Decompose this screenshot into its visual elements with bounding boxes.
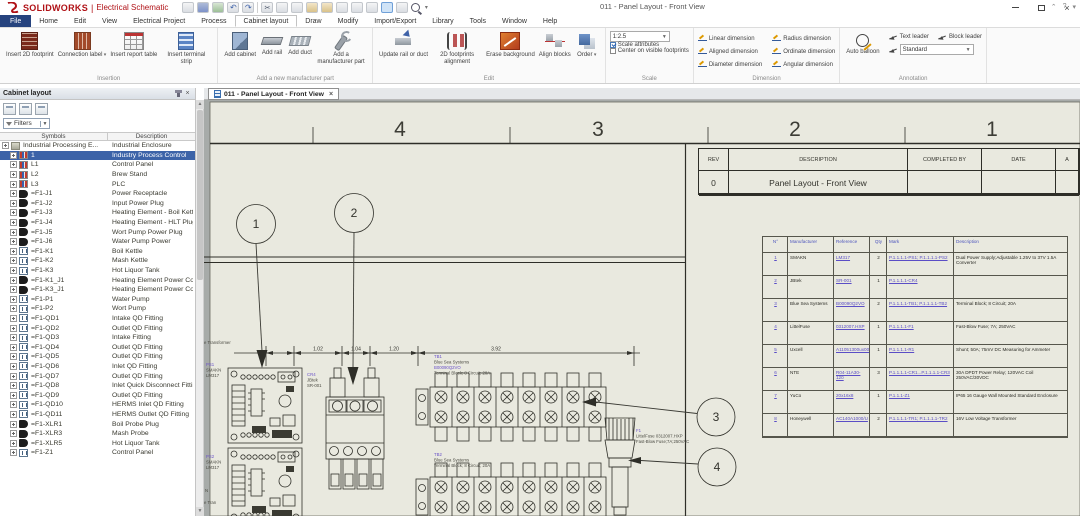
close-icon: × xyxy=(185,90,189,97)
window-title: 011 - Panel Layout - Front View xyxy=(600,2,705,11)
dimension-value: 3.92 xyxy=(491,347,501,353)
expand-icon[interactable] xyxy=(10,229,17,236)
expand-icon[interactable] xyxy=(10,286,17,293)
ribbon-button[interactable]: Order xyxy=(573,30,601,60)
bom-number-link[interactable]: 1 xyxy=(763,253,788,276)
tree-row[interactable]: =F1-J5 Wort Pump Power Plug xyxy=(0,227,195,237)
symbol-label: =F1-QD7 xyxy=(31,373,59,380)
expand-icon[interactable] xyxy=(10,392,17,399)
symbol-icon xyxy=(19,353,28,361)
tree-row[interactable]: =F1-K2 Mash Kettle xyxy=(0,256,195,266)
bom-reference-link[interactable]: AC140A1000/U xyxy=(834,414,870,437)
tree-row[interactable]: =F1-XLR1 Boil Probe Plug xyxy=(0,419,195,429)
symbol-icon xyxy=(19,430,28,438)
panel-header: Cabinet layout × xyxy=(0,88,195,100)
symbol-icon xyxy=(19,401,28,409)
ribbon-group-label: Add a new manufacturer part xyxy=(218,76,372,82)
tree-row[interactable]: =F1-K1_J1 Heating Element Power Conne... xyxy=(0,275,195,285)
tree-row[interactable]: =F1-K3 Hot Liquor Tank xyxy=(0,266,195,276)
description-column-header[interactable]: Description xyxy=(108,133,195,140)
bom-table: N° Manufacturer Reference Qty Mark Descr… xyxy=(762,236,1068,438)
ribbon-button[interactable]: Insert 2D footprint xyxy=(4,30,56,60)
chevron-down-icon: ▼ xyxy=(662,34,667,40)
tree-scrollbar[interactable]: ▲ ▼ xyxy=(196,100,204,516)
expand-icon[interactable] xyxy=(10,296,17,303)
f1-reference-label: LittelFuse 0312007.HXP xyxy=(636,434,683,439)
expand-icon[interactable] xyxy=(10,257,17,264)
dimension-label: Aligned dimension xyxy=(709,49,758,55)
description-label: Control Panel xyxy=(112,161,193,168)
qat-icon[interactable] xyxy=(381,2,393,13)
expand-icon[interactable] xyxy=(10,344,17,351)
description-label: Water Pump Power xyxy=(112,238,193,245)
tb1-description-label: Terminal Block; 8 Circuit; 20A xyxy=(434,371,490,376)
expand-icon[interactable] xyxy=(10,248,17,255)
chevron-up-icon[interactable]: ⌃ xyxy=(1051,3,1057,11)
description-label: Power Receptacle xyxy=(112,190,193,197)
bom-number-link[interactable]: 3 xyxy=(763,299,788,322)
tb2-manufacturer-label: Blue Sea Systems xyxy=(434,458,469,463)
expand-icon[interactable] xyxy=(10,181,17,188)
bom-reference-link[interactable]: A11051300ux0044 xyxy=(834,345,870,368)
bom-row: 3 Blue Sea Systems B00090Q2VO 2 P.1.1.1.… xyxy=(763,299,1067,322)
tree-row[interactable]: =F1-QD7 Outlet QD Fitting xyxy=(0,371,195,381)
brand-separator: | xyxy=(91,3,93,13)
qat-icon[interactable] xyxy=(242,2,254,13)
tree-row[interactable]: L3 PLC xyxy=(0,179,195,189)
menu-tab[interactable]: Edit xyxy=(66,15,94,27)
description-label: Brew Stand xyxy=(112,171,193,178)
text-leader-icon xyxy=(888,33,898,41)
dimension-button[interactable]: Ordinate dimension xyxy=(772,46,835,58)
minimize-icon xyxy=(1012,7,1019,8)
bom-row: 6 NTE R04-11A30-120 3 P.1.1.1.1-CR1...P.… xyxy=(763,368,1067,391)
titlebar: SOLIDWORKS | Electrical Schematic 011 - … xyxy=(0,0,1080,15)
scroll-down-arrow-icon[interactable]: ▼ xyxy=(196,507,204,516)
panel-close-button[interactable]: × xyxy=(183,89,192,98)
menubar-right-icons: ⌃ ? ▾ xyxy=(1051,0,1076,13)
symbol-icon xyxy=(19,382,28,390)
symbol-label: =F1-J5 xyxy=(31,229,52,236)
description-label: HERMS Inlet QD Fitting xyxy=(112,401,193,408)
bom-row: 1 SMAKN LM317 2 P.1.1.1.1-PS1; P.1.1.1.1… xyxy=(763,253,1067,276)
expand-icon[interactable] xyxy=(10,411,17,418)
bom-manufacturer-cell: SMAKN xyxy=(788,253,834,276)
dimension-icon xyxy=(698,48,707,57)
document-tab-label: 011 - Panel Layout - Front View xyxy=(224,91,324,98)
qat-icon[interactable] xyxy=(197,2,209,13)
expand-icon[interactable] xyxy=(10,190,17,197)
scrollbar-thumb[interactable] xyxy=(197,110,203,280)
menu-tab[interactable]: Import/Export xyxy=(366,15,424,27)
bom-reference-link[interactable]: 20x16x8 xyxy=(834,391,870,414)
description-label: Outlet QD Fitting xyxy=(112,325,193,332)
bom-mark-link[interactable]: P.1.1.1.1-R1 xyxy=(887,345,954,368)
bom-qty-cell: 1 xyxy=(870,322,887,345)
filters-button[interactable]: Filters ▼ xyxy=(3,118,50,129)
ribbon-button[interactable]: Add duct xyxy=(286,30,314,58)
bom-mark-link[interactable]: P.1.1.1.1-CR1...P.1.1.1.1-CR3 xyxy=(887,368,954,391)
symbol-label: =F1-XLR3 xyxy=(31,430,62,437)
bom-number-link[interactable]: 7 xyxy=(763,391,788,414)
ps1-manufacturer-label: SMAKN xyxy=(206,368,221,373)
bom-qty-cell: 2 xyxy=(870,414,887,437)
bom-reference-link[interactable]: B00090Q2VO xyxy=(834,299,870,322)
symbol-icon xyxy=(19,219,28,227)
tree-row[interactable]: =F1-QD2 Outlet QD Fitting xyxy=(0,323,195,333)
block-leader-button[interactable]: Block leader xyxy=(937,33,982,41)
menu-tab[interactable]: Home xyxy=(31,15,66,27)
expand-icon[interactable] xyxy=(10,440,17,447)
symbol-label: =F1-J3 xyxy=(31,209,52,216)
description-label: Heating Element Power Conne... xyxy=(112,277,193,284)
dimension-label: Ordinate dimension xyxy=(783,49,835,55)
bom-number-link[interactable]: 8 xyxy=(763,414,788,437)
date-value xyxy=(982,171,1056,196)
bom-reference-link[interactable]: R04-11A30-120 xyxy=(834,368,870,391)
ps2-reference-label: LM317 xyxy=(206,465,220,470)
ribbon-button-label: Connection label xyxy=(58,52,107,59)
bom-mark-link[interactable]: P.1.1.1.1-TR1; P.1.1.1.1-TR2 xyxy=(887,414,954,437)
f1-tag-label: F1 xyxy=(636,428,642,433)
bom-manufacturer-cell: JBtek xyxy=(788,276,834,299)
menu-tab[interactable]: Help xyxy=(535,15,565,27)
symbol-icon xyxy=(19,257,28,265)
table-icon[interactable] xyxy=(19,103,32,115)
tree-row[interactable]: =F1-K3_J1 Heating Element Power Conne... xyxy=(0,285,195,295)
ribbon-button-icon xyxy=(124,32,144,50)
bom-description-cell: Terminal Block; 8 Circuit; 20A xyxy=(954,299,1067,322)
tree-row[interactable]: =F1-P1 Water Pump xyxy=(0,295,195,305)
symbol-icon xyxy=(19,286,28,294)
ribbon-button-label: Update rail or duct xyxy=(379,52,428,59)
tb2-tag-label: TB2 xyxy=(434,452,442,457)
menu-tab[interactable]: Modify xyxy=(330,15,367,27)
qat-icon[interactable] xyxy=(291,2,303,13)
minimize-button[interactable] xyxy=(1002,0,1028,15)
tree-row[interactable]: =F1-XLR5 Hot Liquor Tank xyxy=(0,438,195,448)
qat-icon[interactable] xyxy=(411,3,420,12)
pin-icon xyxy=(177,90,180,97)
tree-row[interactable]: =F1-J4 Heating Element - HLT Plug xyxy=(0,218,195,228)
tree-row[interactable]: =F1-J1 Power Receptacle xyxy=(0,189,195,199)
qat-icon[interactable] xyxy=(227,2,239,13)
expand-icon[interactable] xyxy=(10,305,17,312)
expand-icon[interactable] xyxy=(10,373,17,380)
qat-icon[interactable] xyxy=(257,2,258,13)
tree-row[interactable]: =F1-J2 Input Power Plug xyxy=(0,199,195,209)
ribbon-button[interactable]: Align blocks xyxy=(537,30,573,60)
ribbon-button-label: Insert 2D footprint xyxy=(6,52,54,59)
tree-row[interactable]: =F1-QD3 Intake Fitting xyxy=(0,333,195,343)
symbol-label: =F1-K2 xyxy=(31,257,53,264)
zone-number: 1 xyxy=(986,118,998,141)
description-label: Inlet QD Fitting xyxy=(112,363,193,370)
document-icon[interactable] xyxy=(3,103,16,115)
bom-mark-link[interactable]: P.1.1.1.1-PS1; P.1.1.1.1-PS2 xyxy=(887,253,954,276)
ribbon-button[interactable]: Add a manufacturer part xyxy=(314,30,368,66)
ribbon-button-icon xyxy=(331,32,351,50)
ribbon-button[interactable]: Insert terminal strip xyxy=(159,30,213,66)
qat-icon[interactable] xyxy=(321,2,333,13)
expand-icon[interactable] xyxy=(10,238,17,245)
description-label: Mash Probe xyxy=(112,430,193,437)
bom-number-link[interactable]: 4 xyxy=(763,322,788,345)
qat-icon[interactable] xyxy=(351,2,363,13)
dimension-icon xyxy=(772,61,781,70)
expand-icon[interactable] xyxy=(10,152,17,159)
symbol-label: L3 xyxy=(31,181,39,188)
symbol-icon xyxy=(19,247,28,255)
ribbon-button-label: Add a manufacturer part xyxy=(316,52,366,65)
qat-icon[interactable] xyxy=(423,2,429,13)
bom-number-link[interactable]: 2 xyxy=(763,276,788,299)
menu-tab[interactable]: Electrical Project xyxy=(125,15,193,27)
description-header: DESCRIPTION xyxy=(729,149,908,171)
tree-row[interactable]: =F1-QD5 Outlet QD Fitting xyxy=(0,352,195,362)
ribbon-group-label: Dimension xyxy=(694,76,839,82)
bom-description-cell: IP65 16 Gauge Wall Mounted Standard Encl… xyxy=(954,391,1067,414)
tree-row[interactable]: =F1-QD11 HERMS Outlet QD Fitting xyxy=(0,410,195,420)
qat-icon[interactable] xyxy=(396,2,408,13)
ribbon-button-icon xyxy=(289,36,312,46)
menu-tab[interactable]: Tools xyxy=(462,15,494,27)
tree-row[interactable]: =F1-QD6 Inlet QD Fitting xyxy=(0,362,195,372)
expand-icon[interactable] xyxy=(2,142,9,149)
auto-balloon-button[interactable]: Auto balloon xyxy=(844,30,881,57)
dimension-button[interactable]: Angular dimension xyxy=(772,59,835,71)
ribbon-button-label: Add rail xyxy=(262,50,282,57)
qat-icon[interactable] xyxy=(306,2,318,13)
qat-icon[interactable] xyxy=(182,2,194,13)
symbol-label: 1 xyxy=(31,152,35,159)
tree-row[interactable]: =F1-QD1 Intake QD Fitting xyxy=(0,314,195,324)
quick-access-toolbar xyxy=(182,2,429,13)
tree-row[interactable]: 1 Industry Process Control xyxy=(0,151,195,161)
tree-row[interactable]: =F1-QD8 Inlet Quick Disconnect Fitting xyxy=(0,381,195,391)
symbol-icon xyxy=(19,190,28,198)
bom-mark-link[interactable]: P.1.1.1.1-CR4 xyxy=(887,276,954,299)
bom-number-link[interactable]: 6 xyxy=(763,368,788,391)
menu-tab[interactable]: View xyxy=(94,15,125,27)
panel-toolbar xyxy=(0,100,195,117)
pin-button[interactable] xyxy=(174,89,183,98)
symbol-icon xyxy=(19,276,28,284)
expand-icon[interactable] xyxy=(10,401,17,408)
approved-value xyxy=(1056,171,1079,196)
leader-style-value: Standard xyxy=(903,47,927,53)
scale-select[interactable]: 1:2.5▼ xyxy=(610,31,670,42)
menu-tab[interactable]: Library xyxy=(424,15,461,27)
tree-row[interactable]: =F1-XLR3 Mash Probe xyxy=(0,429,195,439)
expand-icon[interactable] xyxy=(10,430,17,437)
balloon-number: 2 xyxy=(351,206,358,220)
bom-reference-link[interactable]: LM317 xyxy=(834,253,870,276)
bom-manufacturer-cell: Uxcell xyxy=(788,345,834,368)
description-label: Heating Element - Boil Kettle Pl... xyxy=(112,209,193,216)
ribbon-group-label: Insertion xyxy=(0,76,217,82)
ribbon-button-label: Insert terminal strip xyxy=(161,52,211,65)
tree-row[interactable]: =F1-J3 Heating Element - Boil Kettle Pl.… xyxy=(0,208,195,218)
bom-manufacturer-header: Manufacturer xyxy=(788,237,834,253)
description-label: Intake QD Fitting xyxy=(112,315,193,322)
dimension-button[interactable]: Radius dimension xyxy=(772,33,835,45)
symbol-label: =F1-Z1 xyxy=(31,449,53,456)
zone-number: 2 xyxy=(789,118,801,141)
menu-tab[interactable]: Cabinet layout xyxy=(235,15,298,27)
tb1-manufacturer-label: Blue Sea Systems xyxy=(434,360,469,365)
expand-icon[interactable] xyxy=(10,161,17,168)
ribbon-button-icon xyxy=(545,32,565,50)
description-label: Outlet QD Fitting xyxy=(112,373,193,380)
bom-no-header: N° xyxy=(763,237,788,253)
symbol-label: =F1-J6 xyxy=(31,238,52,245)
ribbon-group-label: Annotation xyxy=(840,76,986,82)
menu-tab[interactable]: File xyxy=(0,15,31,27)
ribbon-button-label: Auto balloon xyxy=(846,49,879,56)
menu-tab[interactable]: Window xyxy=(494,15,535,27)
symbol-label: =F1-J4 xyxy=(31,219,52,226)
bom-mark-link[interactable]: P.1.1.1.1-TB1; P.1.1.1.1-TB2 xyxy=(887,299,954,322)
filters-label: Filters xyxy=(14,120,40,127)
ribbon-button[interactable]: Add rail xyxy=(258,30,286,58)
ribbon-button-label: Order xyxy=(577,52,596,59)
qat-icon[interactable] xyxy=(212,2,224,13)
tree-row[interactable]: L1 Control Panel xyxy=(0,160,195,170)
dimension-button[interactable]: Aligned dimension xyxy=(698,46,762,58)
tab-close-icon[interactable]: × xyxy=(329,91,333,98)
description-label: Heating Element - HLT Plug xyxy=(112,219,193,226)
printer-icon[interactable] xyxy=(35,103,48,115)
zone-number: 4 xyxy=(394,118,406,141)
tree-row[interactable]: =F1-P2 Wort Pump xyxy=(0,304,195,314)
text-leader-button[interactable]: Text leader xyxy=(888,33,929,41)
tb2-description-label: Terminal Block; 8 Circuit; 20A xyxy=(434,463,490,468)
dimension-icon xyxy=(772,35,781,44)
scroll-up-arrow-icon[interactable]: ▲ xyxy=(196,100,204,109)
ribbon-button-icon xyxy=(394,32,414,50)
balloon-number: 3 xyxy=(713,410,720,424)
tree-row[interactable]: =F1-K1 Boil Kettle xyxy=(0,247,195,257)
tree-row[interactable]: =F1-QD9 Outlet QD Fitting xyxy=(0,390,195,400)
filter-funnel-icon xyxy=(6,122,12,126)
ribbon-button[interactable]: Insert report table xyxy=(108,30,159,60)
expand-icon[interactable] xyxy=(10,315,17,322)
symbol-icon xyxy=(19,161,28,169)
description-label: Outlet QD Fitting xyxy=(112,353,193,360)
symbol-label: =F1-K3_J1 xyxy=(31,286,64,293)
expand-icon[interactable] xyxy=(10,267,17,274)
checkbox-label: Center on visible footprints xyxy=(618,48,689,54)
bom-manufacturer-cell: LittelFuse xyxy=(788,322,834,345)
expand-icon[interactable] xyxy=(10,421,17,428)
expand-icon[interactable] xyxy=(10,363,17,370)
ribbon-button[interactable]: Erase background xyxy=(484,30,537,60)
tree-row[interactable]: =F1-QD10 HERMS Inlet QD Fitting xyxy=(0,400,195,410)
qat-icon[interactable] xyxy=(261,2,273,13)
bom-qty-cell: 2 xyxy=(870,253,887,276)
bom-reference-link[interactable]: SR-001 xyxy=(834,276,870,299)
ribbon-button-label: Align blocks xyxy=(539,52,571,59)
symbol-icon xyxy=(19,295,28,303)
bom-reference-header: Reference xyxy=(834,237,870,253)
bom-reference-link[interactable]: 0312007.HXP xyxy=(834,322,870,345)
expand-icon[interactable] xyxy=(10,382,17,389)
document-tab[interactable]: 011 - Panel Layout - Front View × xyxy=(208,88,339,100)
panel-title: Cabinet layout xyxy=(3,90,174,97)
center-footprints-checkbox[interactable]: Center on visible footprints xyxy=(610,48,689,54)
tree-row[interactable]: L2 Brew Stand xyxy=(0,170,195,180)
expand-icon[interactable] xyxy=(10,209,17,216)
revision-description: Panel Layout - Front View xyxy=(729,171,908,196)
chevron-down-icon[interactable]: ▾ xyxy=(1072,3,1076,11)
menu-tab[interactable]: Process xyxy=(193,15,234,27)
ps2-tag-label: PS2 xyxy=(206,454,215,459)
button-label: Text leader xyxy=(900,34,929,40)
ribbon-button-icon xyxy=(447,32,467,50)
qat-icon[interactable] xyxy=(276,2,288,13)
dimension-button[interactable]: Diameter dimension xyxy=(698,59,762,71)
ribbon-button[interactable]: Connection label xyxy=(56,30,109,60)
restore-icon xyxy=(1038,5,1045,11)
dimension-value: 1.20 xyxy=(389,347,399,353)
bom-row: 8 Honeywell AC140A1000/U 2 P.1.1.1.1-TR1… xyxy=(763,414,1067,437)
symbol-label: =F1-QD6 xyxy=(31,363,59,370)
ribbon-button[interactable]: 2D footprints alignment xyxy=(430,30,484,66)
expand-icon[interactable] xyxy=(10,325,17,332)
menu-tab[interactable]: Draw xyxy=(297,15,329,27)
expand-icon[interactable] xyxy=(10,334,17,341)
symbol-icon xyxy=(19,228,28,236)
symbol-icon xyxy=(19,420,28,428)
ribbon-button-label: Erase background xyxy=(486,52,535,59)
ribbon-button[interactable]: Add cabinet xyxy=(222,30,258,60)
clipped-label-fragment: e Transformer xyxy=(204,340,231,345)
symbol-icon xyxy=(19,343,28,351)
tree-row[interactable]: Industrial Processing E... Industrial En… xyxy=(0,141,195,151)
expand-icon[interactable] xyxy=(10,219,17,226)
ribbon-button-label: Add cabinet xyxy=(224,52,256,59)
symbol-icon xyxy=(19,151,28,159)
expand-icon[interactable] xyxy=(10,449,17,456)
bom-mark-link[interactable]: P.1.1.1-Z1 xyxy=(887,391,954,414)
tree-row[interactable]: =F1-Z1 Control Panel xyxy=(0,448,195,458)
leader-style-select[interactable]: Standard▼ xyxy=(900,44,974,55)
expand-icon[interactable] xyxy=(10,353,17,360)
expand-icon[interactable] xyxy=(10,171,17,178)
expand-icon[interactable] xyxy=(10,200,17,207)
help-icon[interactable]: ? xyxy=(1063,3,1067,10)
qat-icon[interactable] xyxy=(336,2,348,13)
dimension-value: 1.02 xyxy=(313,347,323,353)
description-label: Mash Kettle xyxy=(112,257,193,264)
expand-icon[interactable] xyxy=(10,277,17,284)
bom-number-link[interactable]: 5 xyxy=(763,345,788,368)
ribbon-group-annotation: Auto balloon Text leader Block leader St… xyxy=(840,28,987,83)
ribbon-button[interactable]: Update rail or duct xyxy=(377,30,430,60)
description-label: Control Panel xyxy=(112,449,193,456)
block-leader-icon xyxy=(937,33,947,41)
dimension-label: Radius dimension xyxy=(783,36,831,42)
bom-mark-link[interactable]: P.1.1.1.1-F1 xyxy=(887,322,954,345)
tree-row[interactable]: =F1-J6 Water Pump Power xyxy=(0,237,195,247)
tree-row[interactable]: =F1-QD4 Outlet QD Fitting xyxy=(0,342,195,352)
balloon-number: 1 xyxy=(253,217,260,231)
symbols-column-header[interactable]: Symbols xyxy=(0,133,108,140)
dimension-button[interactable]: Linear dimension xyxy=(698,33,762,45)
ribbon-button-icon xyxy=(261,37,284,45)
qat-icon[interactable] xyxy=(366,2,378,13)
